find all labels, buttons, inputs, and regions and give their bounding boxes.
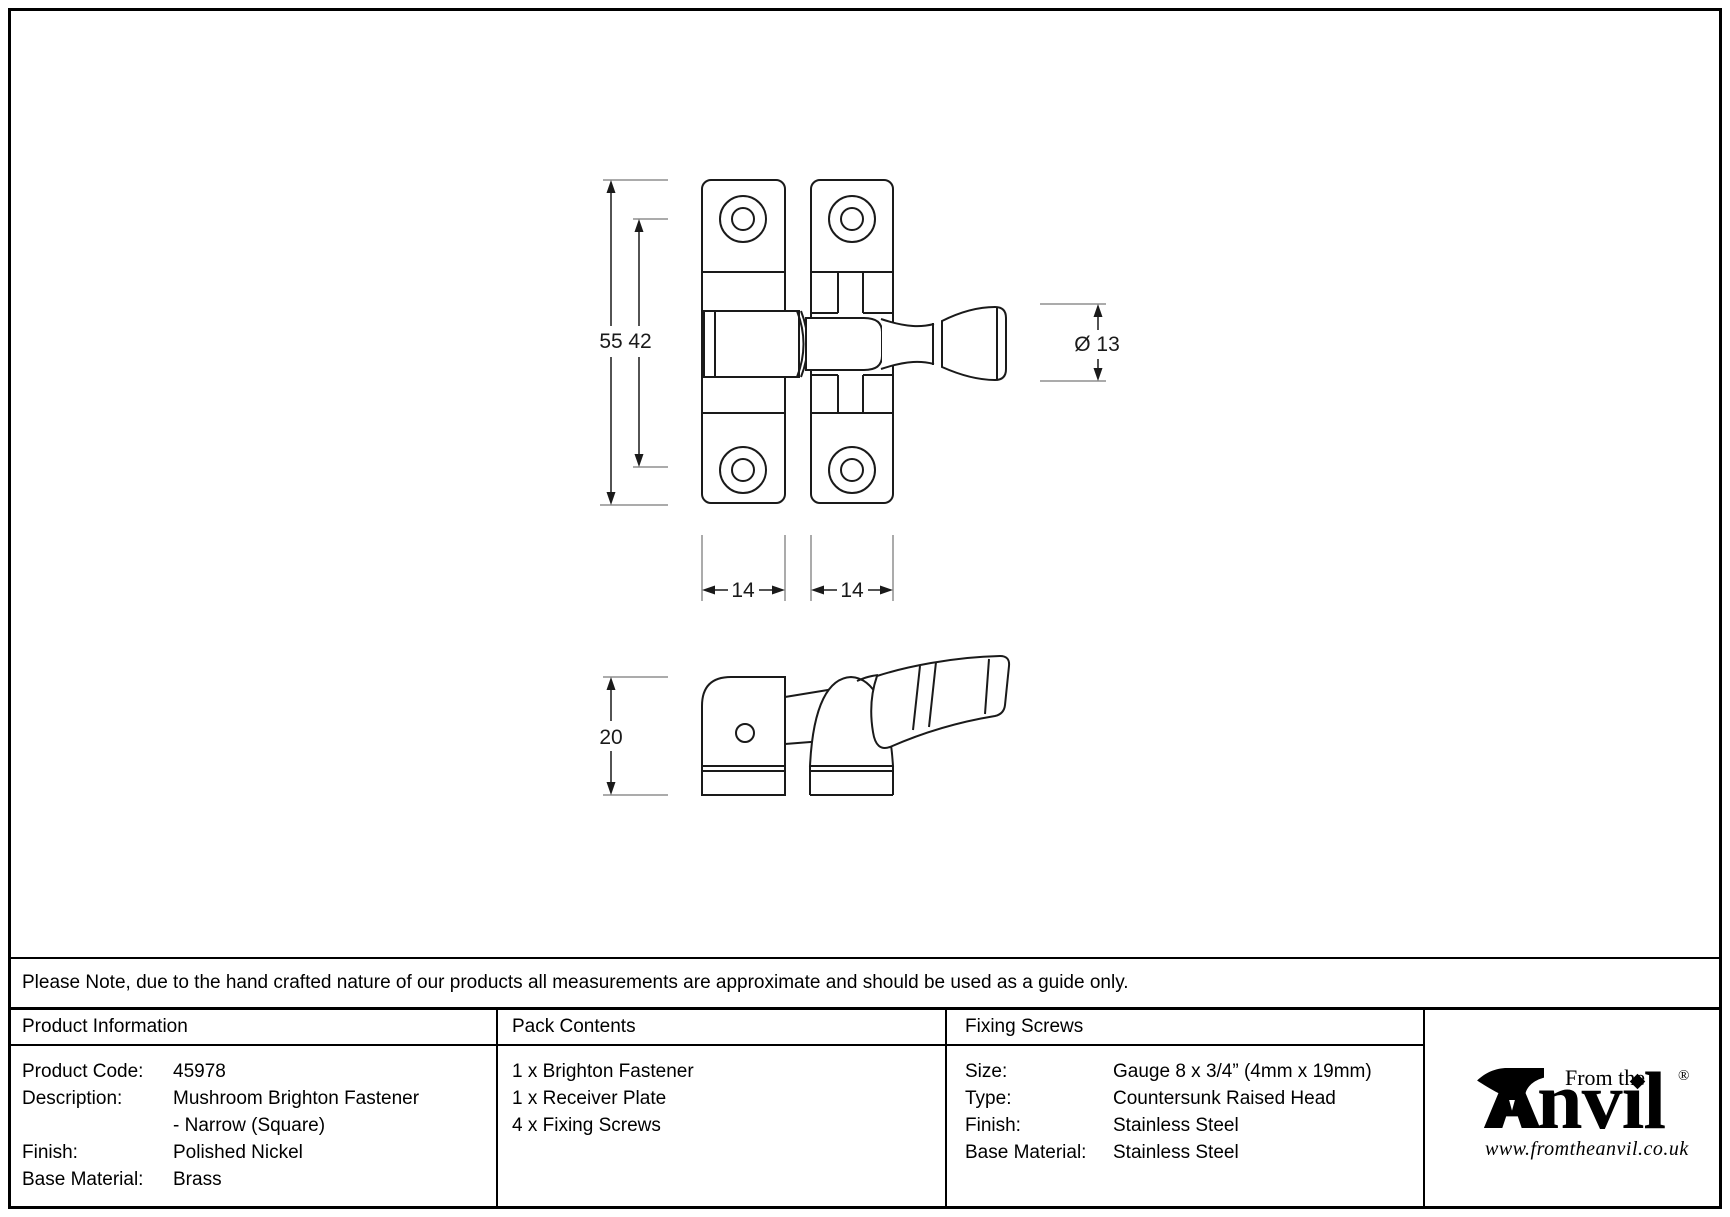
row-label [22,1112,173,1139]
row-label: Finish: [22,1139,173,1166]
dim-projection: 20 [599,726,622,749]
table-row: - Narrow (Square) [8,1112,496,1139]
row-label: Product Code: [22,1058,173,1085]
dim-base-width: 14 [840,579,864,602]
from-the-anvil-logo: nvıl From the ® www.fromtheanvil.co.uk [1425,1010,1722,1209]
fixing-screws-body: Size: Gauge 8 x 3/4” (4mm x 19mm) Type: … [947,1046,1423,1166]
dim-overall-height: 55 [599,330,622,353]
table-row: Size: Gauge 8 x 3/4” (4mm x 19mm) [947,1058,1423,1085]
column-brand: nvıl From the ® www.fromtheanvil.co.uk [1423,1010,1722,1209]
row-label: Description: [22,1085,173,1112]
pack-contents-body: 1 x Brighton Fastener 1 x Receiver Plate… [498,1046,945,1139]
row-value: Stainless Steel [1113,1139,1239,1166]
pack-item: 1 x Receiver Plate [498,1085,945,1112]
column-fixing-screws: Fixing Screws Size: Gauge 8 x 3/4” (4mm … [945,1010,1423,1209]
row-label: Type: [965,1085,1113,1112]
product-information-header: Product Information [8,1010,496,1046]
pack-contents-header: Pack Contents [498,1010,945,1046]
table-row: Finish: Polished Nickel [8,1139,496,1166]
row-label: Base Material: [965,1139,1113,1166]
pack-item: 1 x Brighton Fastener [498,1058,945,1085]
knob-neck-fill [882,320,933,368]
row-label: Base Material: [22,1166,173,1193]
registered-trademark-symbol: ® [1678,1068,1689,1085]
row-value: Mushroom Brighton Fastener [173,1085,419,1112]
product-information-body: Product Code: 45978 Description: Mushroo… [8,1046,496,1193]
spec-sheet-page: 55 42 14 14 Ø 13 20 Please Note, due to … [0,0,1730,1217]
row-label: Finish: [965,1112,1113,1139]
pack-item: 4 x Fixing Screws [498,1112,945,1139]
side-view [702,656,1009,795]
row-label: Size: [965,1058,1113,1085]
measurement-note-text: Please Note, due to the hand crafted nat… [22,972,1129,994]
table-row: Type: Countersunk Raised Head [947,1085,1423,1112]
fixing-screws-header: Fixing Screws [947,1010,1423,1046]
technical-drawing: 55 42 14 14 Ø 13 20 [0,0,1730,955]
dim-receiver-width: 14 [731,579,755,602]
dim-knob-diameter: Ø 13 [1074,333,1120,356]
product-info-table: Product Information Product Code: 45978 … [8,1007,1722,1209]
base-side-lines [810,766,893,795]
row-value: Gauge 8 x 3/4” (4mm x 19mm) [1113,1058,1372,1085]
plan-view [702,180,1006,503]
row-value: Countersunk Raised Head [1113,1085,1336,1112]
table-row: Base Material: Stainless Steel [947,1139,1423,1166]
row-value: Stainless Steel [1113,1112,1239,1139]
table-row: Description: Mushroom Brighton Fastener [8,1085,496,1112]
row-value: Polished Nickel [173,1139,303,1166]
row-value: 45978 [173,1058,226,1085]
receiver-side-outline [702,677,785,795]
latch-housing [704,311,799,377]
table-row: Base Material: Brass [8,1166,496,1193]
website-url: www.fromtheanvil.co.uk [1485,1138,1689,1161]
measurement-note: Please Note, due to the hand crafted nat… [8,957,1722,1007]
table-row: Product Code: 45978 [8,1058,496,1085]
column-pack-contents: Pack Contents 1 x Brighton Fastener 1 x … [496,1010,945,1209]
knob-band-lines [933,321,942,367]
latch-bolt [806,318,882,370]
column-product-information: Product Information Product Code: 45978 … [8,1010,496,1209]
row-value: Brass [173,1166,222,1193]
row-value: - Narrow (Square) [173,1112,325,1139]
dim-screw-spacing: 42 [628,330,651,353]
table-row: Finish: Stainless Steel [947,1112,1423,1139]
